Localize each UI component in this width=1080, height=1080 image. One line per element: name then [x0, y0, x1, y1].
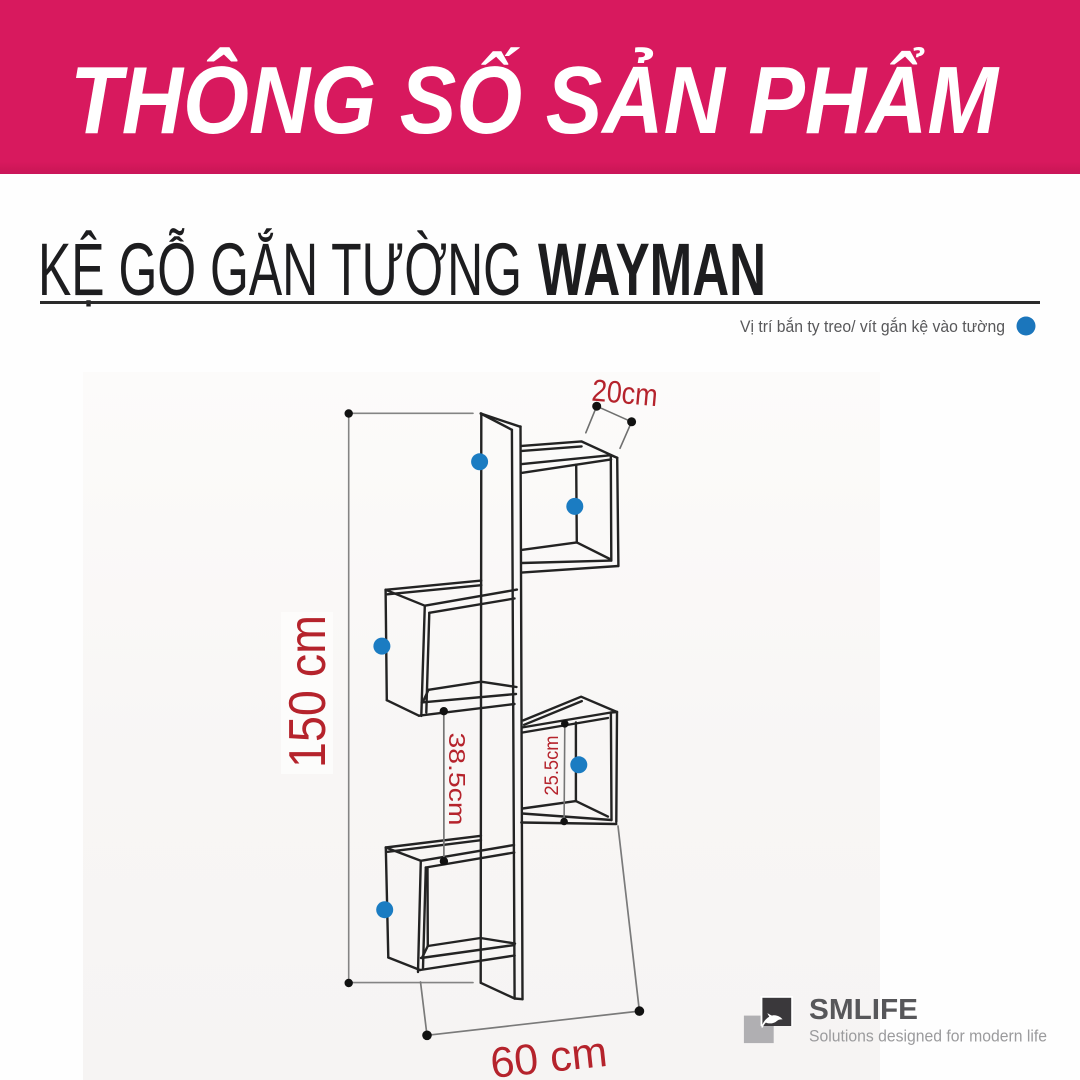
svg-text:150 cm: 150 cm	[279, 615, 337, 768]
svg-text:38.5cm: 38.5cm	[444, 733, 470, 826]
svg-text:25.5cm: 25.5cm	[541, 736, 563, 796]
svg-text:Solutions designed for modern: Solutions designed for modern life	[809, 1028, 1047, 1046]
svg-text:20cm: 20cm	[590, 373, 659, 414]
svg-text:60 cm: 60 cm	[488, 1028, 609, 1080]
svg-text:SMLIFE: SMLIFE	[809, 994, 918, 1026]
